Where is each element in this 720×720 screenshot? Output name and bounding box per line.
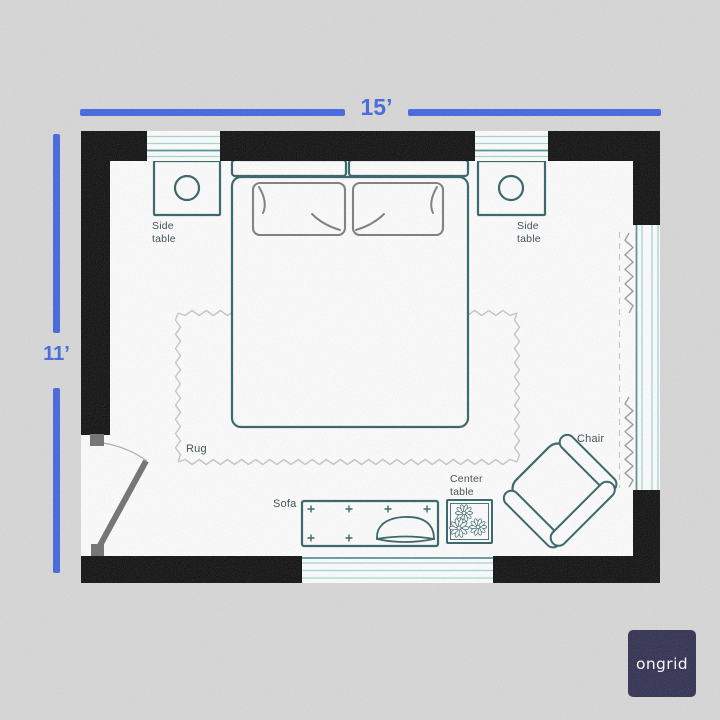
window-bottom	[302, 556, 493, 583]
height-dimension-label: 11’	[38, 343, 75, 366]
sofa	[302, 501, 438, 546]
window-top-left	[147, 131, 220, 161]
lamp-icon	[499, 176, 523, 200]
width-dimension-line	[408, 109, 661, 116]
headboard-left	[232, 160, 346, 176]
window-top-right	[475, 131, 548, 161]
door-jamb	[90, 434, 104, 446]
side-table-right	[478, 161, 545, 215]
lamp-icon	[175, 176, 199, 200]
height-dimension-line	[53, 134, 60, 333]
width-dimension-line	[80, 109, 345, 116]
side-table-right-label: Side table	[517, 220, 541, 245]
height-dimension-line	[53, 388, 60, 573]
center-table	[447, 500, 492, 543]
side-table-left	[154, 161, 220, 215]
width-dimension-label: 15’	[345, 94, 408, 121]
pillow-right	[353, 183, 443, 235]
window-right	[633, 225, 660, 490]
sofa-label: Sofa	[273, 498, 296, 511]
brand-logo: ongrid	[628, 630, 696, 697]
floor-plan-canvas: 15’ 11’ Side table Side table Rug Sofa C…	[0, 0, 720, 720]
headboard-right	[349, 160, 468, 176]
rug-label: Rug	[186, 443, 207, 456]
side-table-left-label: Side table	[152, 220, 176, 245]
brand-logo-text: ongrid	[636, 655, 688, 673]
bed	[232, 160, 468, 427]
center-table-label: Center table	[450, 473, 483, 498]
chair-label: Chair	[577, 433, 604, 446]
